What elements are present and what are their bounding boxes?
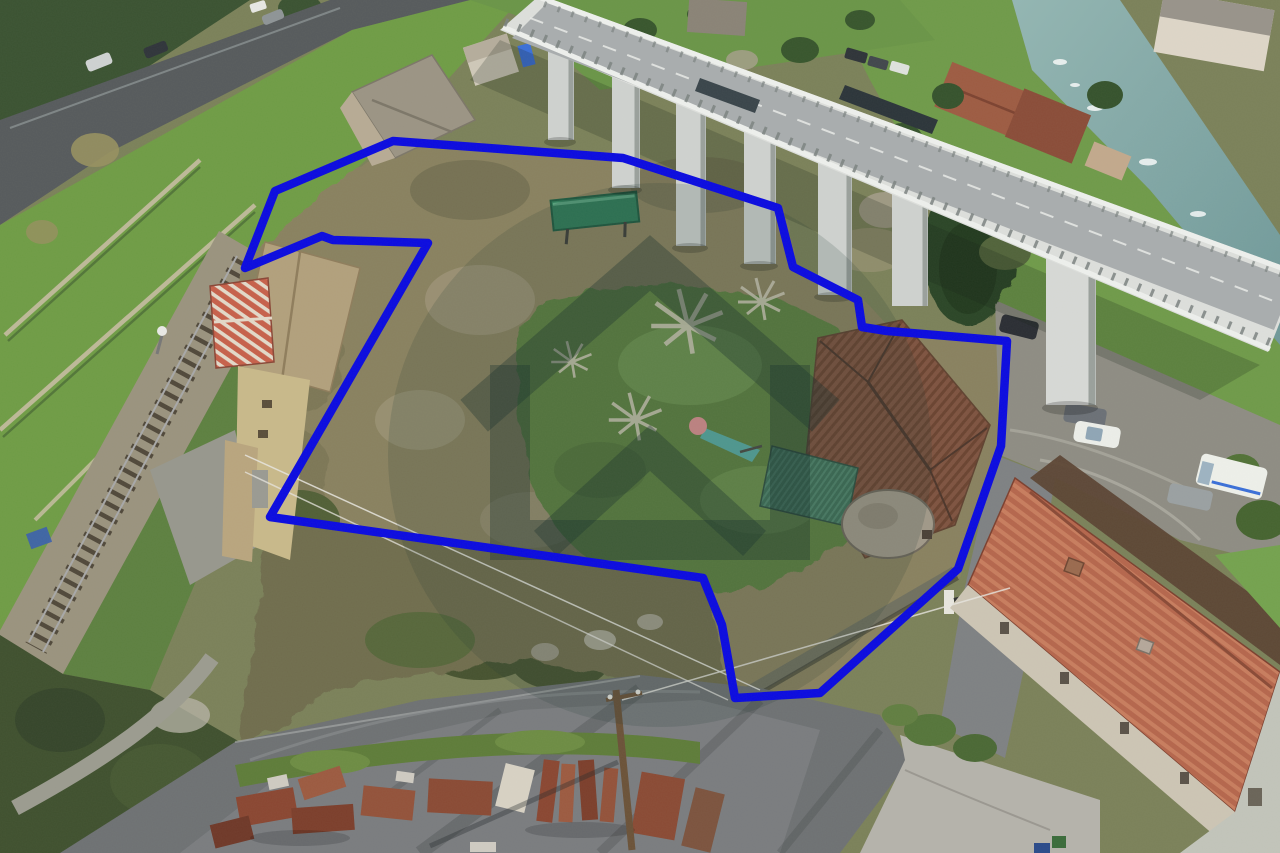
aerial-photo-viewport — [0, 0, 1280, 853]
aerial-photo — [0, 0, 1280, 853]
photo-grain — [0, 0, 1280, 853]
